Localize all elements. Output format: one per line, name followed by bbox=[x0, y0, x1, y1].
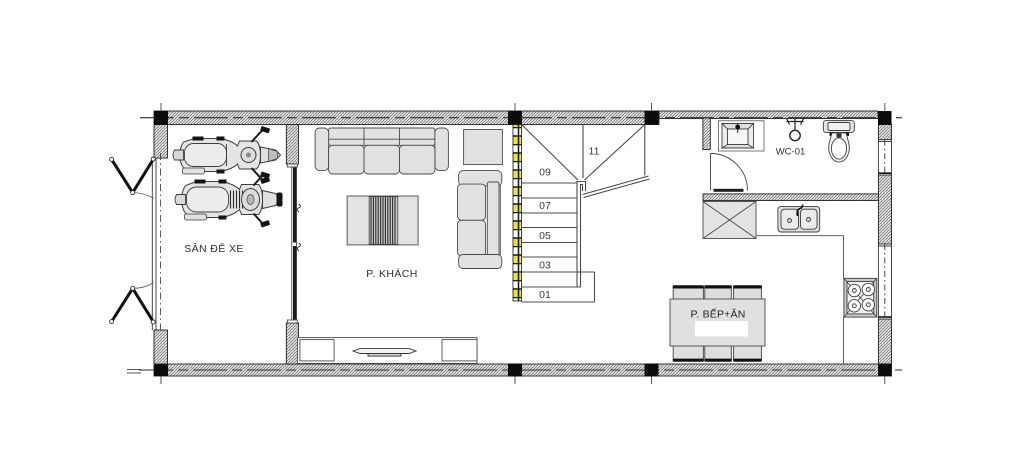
svg-text:05: 05 bbox=[539, 230, 551, 242]
svg-text:01: 01 bbox=[539, 289, 551, 301]
svg-text:P. KHÁCH: P. KHÁCH bbox=[366, 267, 417, 280]
svg-text:11: 11 bbox=[589, 146, 600, 158]
svg-text:07: 07 bbox=[539, 200, 551, 212]
svg-text:SÂN ĐỂ XE: SÂN ĐỂ XE bbox=[184, 242, 244, 255]
svg-text:WC-01: WC-01 bbox=[776, 147, 806, 158]
svg-text:P. BẾP+ĂN: P. BẾP+ĂN bbox=[690, 308, 745, 321]
svg-text:03: 03 bbox=[539, 260, 551, 272]
svg-text:09: 09 bbox=[539, 167, 551, 179]
